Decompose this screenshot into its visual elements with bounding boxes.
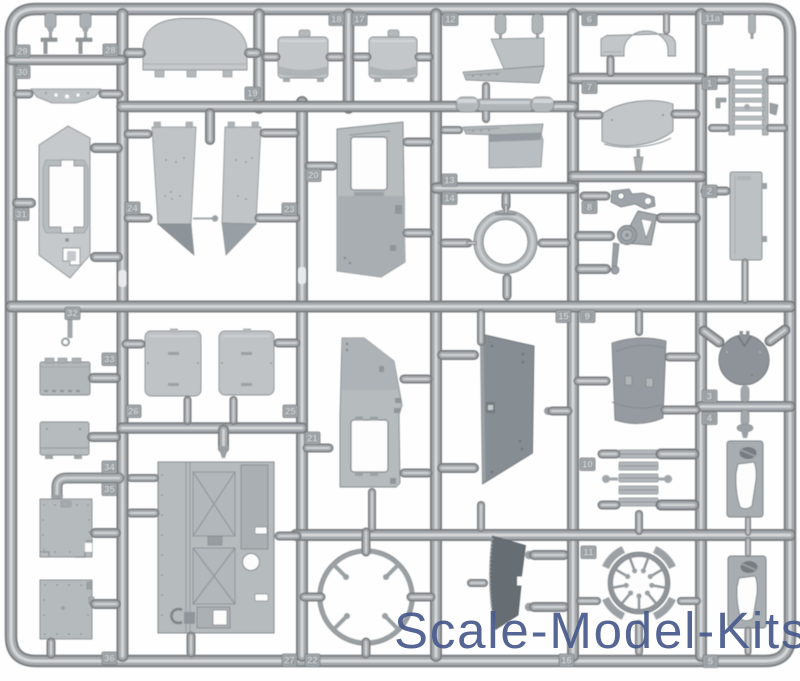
svg-text:35: 35 [104, 485, 115, 496]
svg-text:12: 12 [445, 15, 456, 26]
svg-text:11a: 11a [705, 14, 721, 25]
svg-text:13: 13 [444, 176, 455, 187]
svg-text:7: 7 [587, 83, 592, 94]
svg-text:8: 8 [587, 203, 592, 214]
svg-text:1: 1 [707, 79, 713, 90]
svg-text:29: 29 [17, 47, 28, 58]
svg-text:18: 18 [331, 15, 342, 26]
svg-text:21: 21 [307, 434, 318, 445]
svg-text:36: 36 [104, 654, 115, 665]
svg-text:3: 3 [707, 392, 712, 403]
svg-text:25: 25 [285, 407, 296, 418]
svg-text:34: 34 [104, 463, 115, 474]
svg-text:31: 31 [16, 210, 27, 221]
svg-text:27: 27 [284, 656, 295, 667]
svg-text:6: 6 [587, 15, 592, 26]
svg-text:10: 10 [582, 460, 593, 471]
svg-text:Scale-Model-Kits: Scale-Model-Kits [394, 602, 800, 659]
svg-text:17: 17 [354, 15, 365, 26]
svg-text:11: 11 [583, 548, 594, 559]
svg-text:28: 28 [105, 46, 116, 57]
svg-text:20: 20 [308, 171, 319, 182]
svg-text:26: 26 [128, 407, 139, 418]
svg-text:22: 22 [307, 656, 318, 667]
svg-text:2: 2 [707, 187, 712, 198]
svg-text:9: 9 [585, 312, 590, 323]
svg-text:24: 24 [127, 204, 138, 215]
svg-text:33: 33 [104, 355, 115, 366]
svg-text:32: 32 [67, 309, 78, 320]
svg-text:30: 30 [17, 68, 28, 79]
svg-text:14: 14 [444, 194, 455, 205]
svg-text:23: 23 [284, 205, 295, 216]
svg-text:19: 19 [247, 89, 258, 100]
svg-text:4: 4 [707, 414, 713, 425]
svg-text:15: 15 [558, 312, 569, 323]
